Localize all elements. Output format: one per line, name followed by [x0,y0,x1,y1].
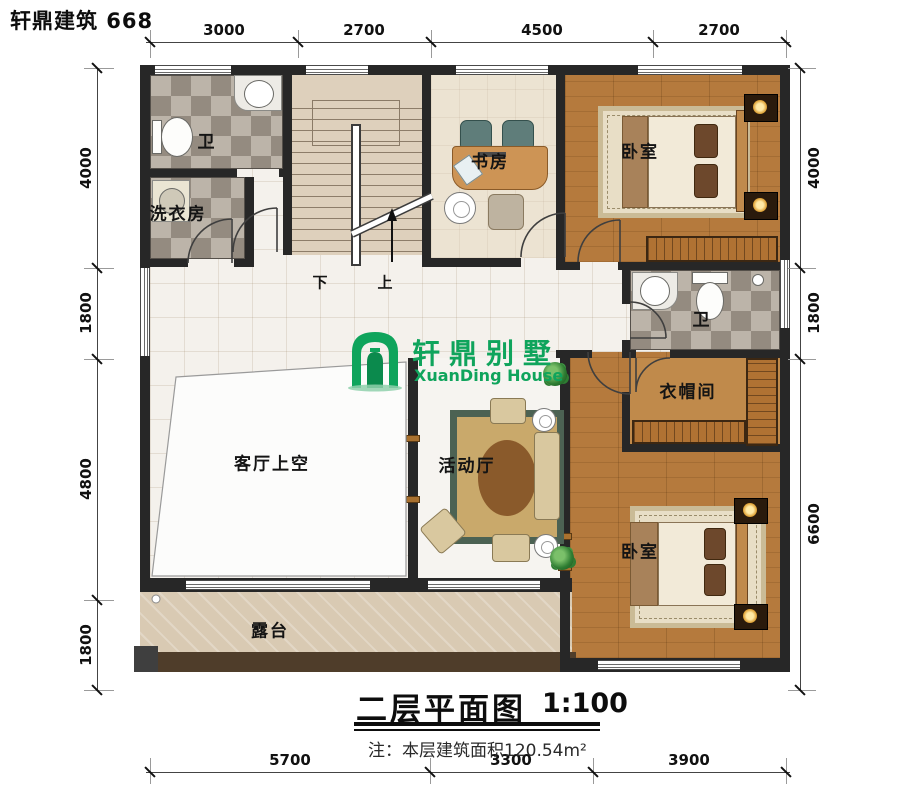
door-bedroom-bottom [588,352,630,394]
label-stair-up: 上 [377,272,392,293]
dim-top-4: 2700 [698,21,740,39]
dimension-line-left [97,68,98,690]
dim-left-2: 1800 [77,292,95,334]
title-underline-thick [354,722,600,726]
dim-bottom-1: 5700 [269,751,311,769]
title-underline-thin [354,729,600,731]
dim-left-4: 1800 [77,624,95,666]
label-bath-mid: 卫 [693,306,712,331]
door-bedroom-top [578,220,620,262]
door-bath-top [233,208,277,252]
label-bedroom-top: 卧室 [621,138,659,163]
dim-right-2: 1800 [805,292,823,334]
dim-right-1: 4000 [805,147,823,189]
dim-right-3: 6600 [805,503,823,545]
dim-left-3: 4800 [77,458,95,500]
door-bath-mid [630,302,666,338]
dimension-line-top [146,42,790,43]
dimension-line-right [800,68,801,690]
plan-linework [0,0,900,800]
label-terrace: 露台 [251,617,289,642]
label-activity-hall: 活动厅 [439,452,496,477]
logo-text-en: XuanDing House [414,366,563,385]
dim-top-3: 4500 [521,21,563,39]
xuanding-logo-icon [346,326,404,392]
area-note: 注：本层建筑面积120.54m² [368,736,587,761]
label-stair-down: 下 [312,272,327,293]
label-laundry: 洗衣房 [150,200,207,225]
door-laundry [188,219,232,263]
terrace-drain-icon [152,595,160,603]
door-study [521,213,565,257]
label-bedroom-bottom: 卧室 [621,538,659,563]
floor-plan-canvas: 轩鼎建筑 668 [0,0,900,800]
plan-scale: 1:100 [542,688,628,719]
label-bath-top: 卫 [198,128,217,153]
label-living-void: 客厅上空 [234,450,310,475]
dim-top-1: 3000 [203,21,245,39]
label-cloakroom: 衣帽间 [660,378,717,403]
dim-left-1: 4000 [77,147,95,189]
dim-top-2: 2700 [343,21,385,39]
dimension-line-bottom [146,772,790,773]
dim-bottom-3: 3900 [668,751,710,769]
label-study: 书房 [471,148,509,173]
